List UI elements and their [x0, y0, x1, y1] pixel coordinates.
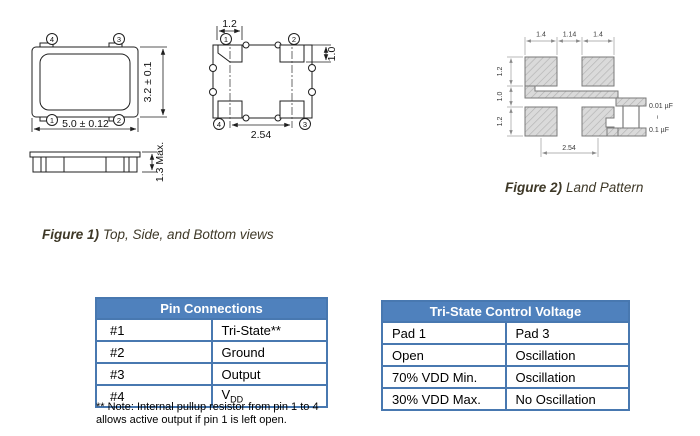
figure2-caption-text: Land Pattern: [566, 180, 643, 195]
capacitor-top-electrode: [616, 98, 646, 106]
dim-label: 1.2: [497, 117, 504, 127]
connection-cell: Output: [212, 363, 328, 385]
figure1-caption: Figure 1)Top, Side, and Bottom views: [42, 227, 274, 242]
land-pad-4: [525, 107, 557, 136]
table-row: Open Oscillation: [382, 344, 629, 366]
table-row: Pad 1 Pad 3: [382, 322, 629, 344]
trace-to-capacitor: [525, 86, 618, 98]
pin-number: 2: [117, 116, 121, 125]
pad1-cell: Open: [382, 344, 506, 366]
dim-label: 1.4: [536, 32, 546, 39]
bottom-pitch-label: 2.54: [251, 129, 272, 141]
table-row: 70% VDD Min. Oscillation: [382, 366, 629, 388]
tristate-table-title: Tri-State Control Voltage: [382, 301, 629, 322]
figure1-caption-number: Figure 1): [42, 227, 99, 242]
dim-label: 1.4: [593, 32, 603, 39]
table-row: 30% VDD Max. No Oscillation: [382, 388, 629, 410]
edge-notch: [210, 89, 217, 96]
table-header-row: Pin Connections: [96, 298, 327, 319]
datasheet-page: 5.0 ± 0.12 3.2 ± 0.1 4 3 1 2: [0, 0, 700, 436]
figure2-caption: Figure 2)Land Pattern: [505, 180, 643, 195]
figure1-drawings: 5.0 ± 0.12 3.2 ± 0.1 4 3 1 2: [0, 0, 370, 215]
edge-notch: [210, 65, 217, 72]
pin-number: 3: [303, 120, 307, 129]
top-view-height-dim-label: 3.2 ± 0.1: [142, 61, 154, 102]
pin-cell: #2: [96, 341, 212, 363]
pin-cell: #3: [96, 363, 212, 385]
pad1-cell: Pad 1: [382, 322, 506, 344]
pin-number: 4: [217, 120, 221, 129]
capacitor-range-tilde: ~: [653, 115, 660, 119]
pin-table-title: Pin Connections: [96, 298, 327, 319]
capacitor-max-label: 0.1 µF: [649, 127, 669, 134]
pin-number: 4: [50, 35, 54, 44]
pad3-cell: No Oscillation: [506, 388, 630, 410]
dim-label: 1.2: [497, 67, 504, 77]
table-row: #3 Output: [96, 363, 327, 385]
pin-connections-table: Pin Connections #1 Tri-State** #2 Ground…: [95, 297, 328, 408]
edge-notch: [309, 89, 316, 96]
edge-notch: [243, 42, 249, 48]
table-row: #2 Ground: [96, 341, 327, 363]
bottom-pad-height-label: 1.0: [326, 47, 338, 62]
figure2-caption-number: Figure 2): [505, 180, 562, 195]
side-view: [30, 152, 157, 172]
connection-cell: Tri-State**: [212, 319, 328, 341]
capacitor-min-label: 0.01 µF: [649, 103, 673, 110]
land-pad-1: [525, 57, 557, 86]
dim-label: 2.54: [562, 145, 576, 152]
pin-number: 3: [117, 35, 121, 44]
figure1-caption-text: Top, Side, and Bottom views: [103, 227, 274, 242]
pad3-connector-strip: [607, 128, 618, 136]
package-lid-outline: [40, 54, 130, 110]
pin-number: 1: [50, 116, 54, 125]
figure2-land-pattern: 1.4 1.14 1.4 1.2 1.0 1.2 2.54 0.01 µF ~ …: [470, 10, 700, 172]
pin-number: 2: [292, 35, 296, 44]
dim-label: 1.0: [497, 92, 504, 102]
land-pads: [525, 57, 646, 136]
note-line: allows active output if pin 1 is left op…: [96, 414, 356, 427]
dim-label: 1.14: [563, 32, 577, 39]
side-view-thickness-label: 1.3 Max.: [154, 142, 166, 182]
connection-cell: Ground: [212, 341, 328, 363]
side-view-lip: [30, 152, 140, 157]
pad3-cell: Pad 3: [506, 322, 630, 344]
capacitor-body-lines: [623, 106, 639, 128]
edge-notch: [243, 115, 249, 121]
pad1-cell: 70% VDD Min.: [382, 366, 506, 388]
tristate-control-table: Tri-State Control Voltage Pad 1 Pad 3 Op…: [381, 300, 630, 411]
bottom-pad-width-label: 1.2: [222, 18, 237, 30]
top-view-width-dim-label: 5.0 ± 0.12: [62, 118, 109, 130]
note-line: ** Note: Internal pullup resistor from p…: [96, 401, 356, 414]
vdd-label: V: [222, 387, 231, 402]
side-view-body: [33, 157, 137, 172]
table-row: #1 Tri-State**: [96, 319, 327, 341]
pad3-cell: Oscillation: [506, 366, 630, 388]
pin-table-note: ** Note: Internal pullup resistor from p…: [96, 401, 356, 428]
pin-cell: #1: [96, 319, 212, 341]
edge-notch: [309, 65, 316, 72]
pad1-cell: 30% VDD Max.: [382, 388, 506, 410]
land-pad-2: [582, 57, 614, 86]
capacitor-bottom-electrode: [616, 128, 646, 136]
pad3-cell: Oscillation: [506, 344, 630, 366]
pin-number: 1: [224, 35, 228, 44]
table-header-row: Tri-State Control Voltage: [382, 301, 629, 322]
